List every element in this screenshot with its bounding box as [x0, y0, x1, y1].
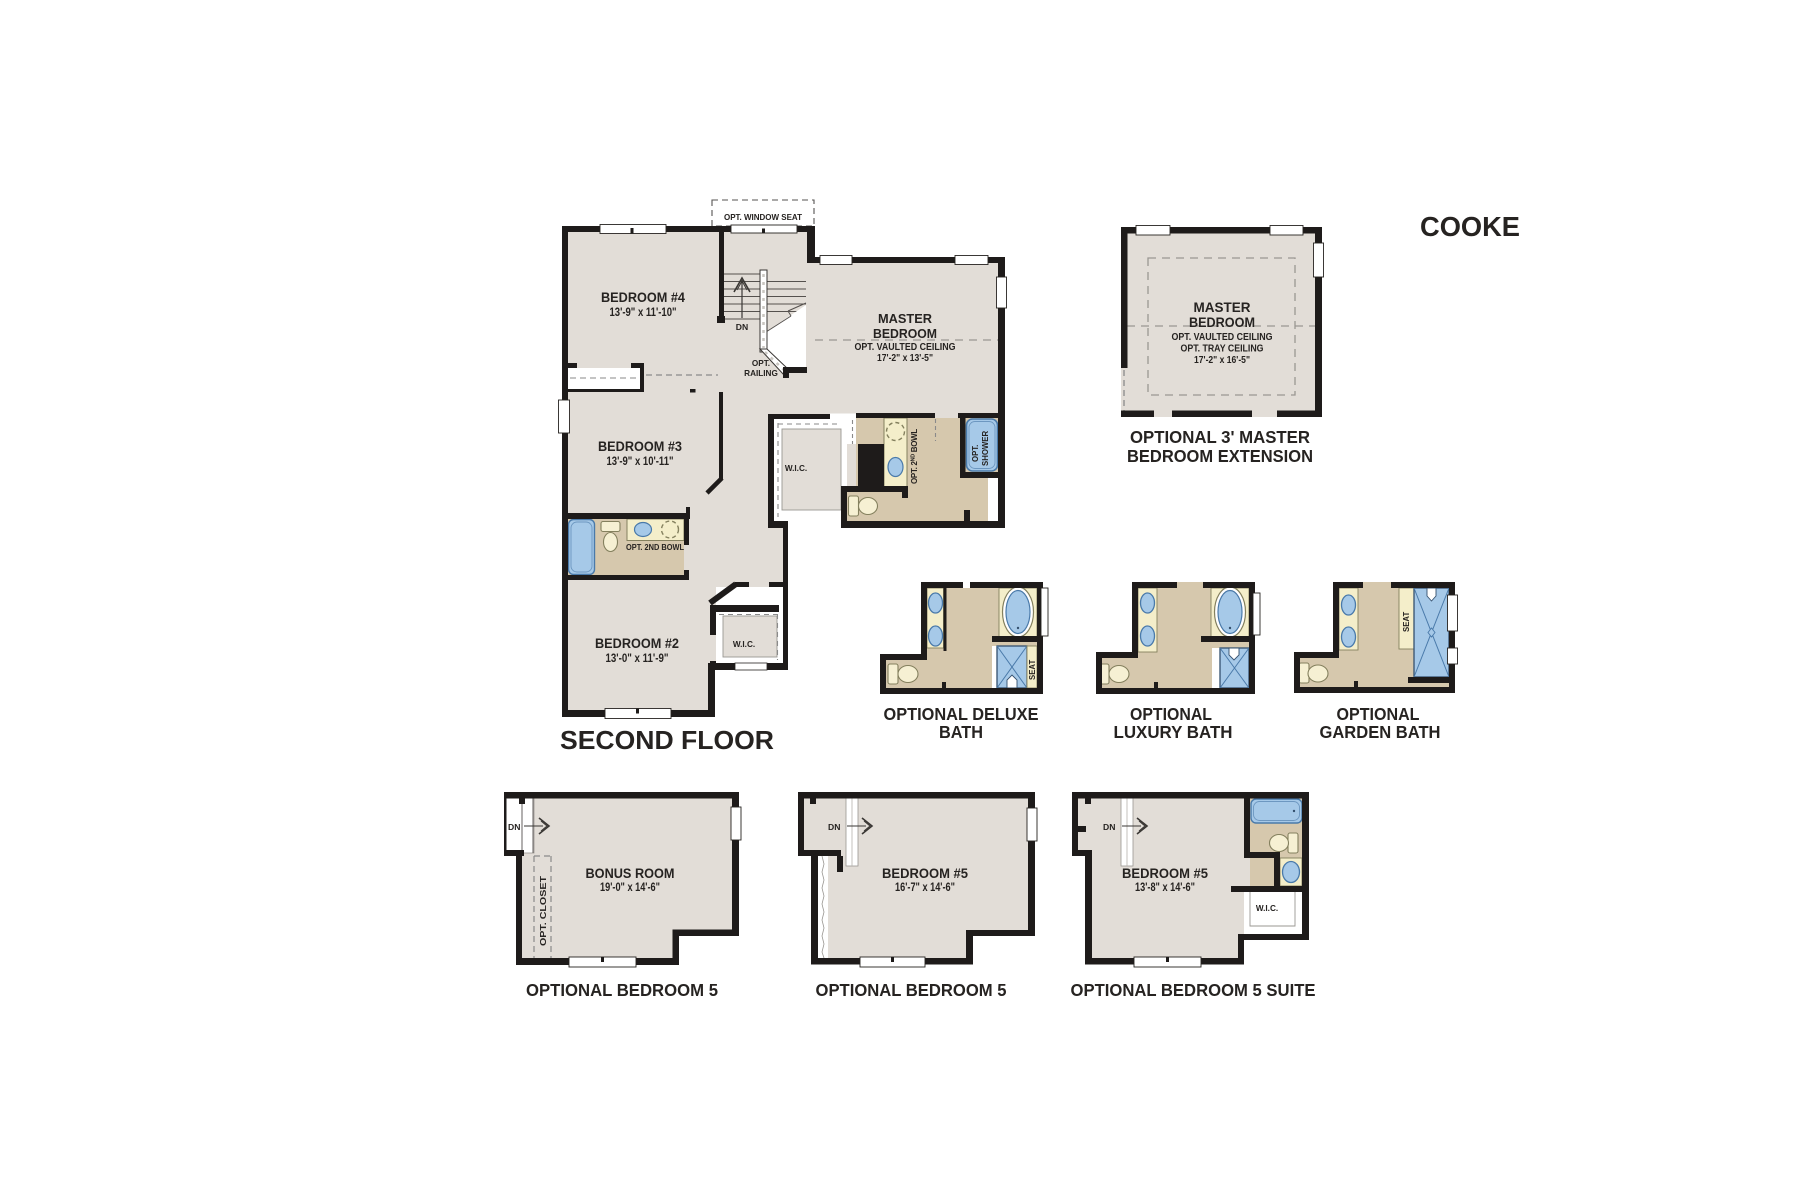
svg-text:OPT. TRAY CEILING: OPT. TRAY CEILING: [1181, 343, 1264, 355]
svg-text:SHOWER: SHOWER: [981, 431, 990, 466]
svg-text:W.I.C.: W.I.C.: [1256, 904, 1278, 913]
svg-text:MASTER: MASTER: [1194, 299, 1251, 315]
svg-text:COOKE: COOKE: [1420, 211, 1520, 242]
svg-text:BEDROOM EXTENSION: BEDROOM EXTENSION: [1127, 446, 1313, 466]
svg-text:DN: DN: [828, 822, 840, 832]
svg-text:BEDROOM #2: BEDROOM #2: [595, 636, 679, 651]
svg-text:OPTIONAL 3' MASTER: OPTIONAL 3' MASTER: [1130, 427, 1310, 447]
svg-text:OPT.: OPT.: [752, 359, 770, 368]
svg-text:13'-0" x 11'-9": 13'-0" x 11'-9": [606, 651, 669, 665]
svg-text:OPT. CLOSET: OPT. CLOSET: [539, 876, 548, 946]
svg-text:19'-0" x 14'-6": 19'-0" x 14'-6": [600, 880, 660, 894]
svg-text:BEDROOM: BEDROOM: [1189, 314, 1255, 330]
svg-text:LUXURY BATH: LUXURY BATH: [1114, 722, 1233, 742]
svg-text:W.I.C.: W.I.C.: [733, 640, 755, 649]
svg-text:13'-8" x 14'-6": 13'-8" x 14'-6": [1135, 880, 1195, 894]
svg-text:OPT.: OPT.: [971, 445, 980, 462]
svg-text:OPT. WINDOW SEAT: OPT. WINDOW SEAT: [724, 212, 803, 222]
svg-text:BEDROOM: BEDROOM: [873, 326, 937, 341]
svg-text:OPT. VAULTED CEILING: OPT. VAULTED CEILING: [1172, 331, 1273, 343]
svg-text:W.I.C.: W.I.C.: [785, 464, 807, 473]
svg-text:OPT. 2ND BOWL: OPT. 2ND BOWL: [626, 543, 684, 552]
svg-text:OPTIONAL: OPTIONAL: [1130, 704, 1212, 724]
svg-text:SECOND FLOOR: SECOND FLOOR: [560, 725, 774, 755]
svg-text:13'-9" x 11'-10": 13'-9" x 11'-10": [610, 305, 677, 319]
svg-text:OPTIONAL: OPTIONAL: [1337, 704, 1420, 724]
svg-text:BATH: BATH: [939, 722, 983, 742]
svg-text:OPTIONAL BEDROOM 5 SUITE: OPTIONAL BEDROOM 5 SUITE: [1071, 980, 1316, 1000]
svg-text:OPTIONAL BEDROOM 5: OPTIONAL BEDROOM 5: [526, 980, 718, 1000]
svg-text:DN: DN: [508, 822, 520, 832]
svg-text:OPTIONAL DELUXE: OPTIONAL DELUXE: [884, 704, 1039, 724]
svg-text:RAILING: RAILING: [744, 369, 778, 378]
svg-text:17'-2" x 16'-5": 17'-2" x 16'-5": [1194, 354, 1250, 366]
svg-text:SEAT: SEAT: [1028, 660, 1037, 680]
svg-text:OPTIONAL BEDROOM 5: OPTIONAL BEDROOM 5: [816, 980, 1007, 1000]
svg-text:BEDROOM #5: BEDROOM #5: [882, 866, 968, 881]
svg-text:BEDROOM #4: BEDROOM #4: [601, 290, 685, 305]
svg-text:GARDEN BATH: GARDEN BATH: [1320, 722, 1441, 742]
svg-text:BONUS ROOM: BONUS ROOM: [586, 866, 675, 881]
svg-text:16'-7" x 14'-6": 16'-7" x 14'-6": [895, 880, 955, 894]
svg-text:DN: DN: [736, 322, 748, 332]
svg-text:17'-2" x 13'-5": 17'-2" x 13'-5": [877, 352, 933, 364]
svg-text:BEDROOM #3: BEDROOM #3: [598, 439, 682, 454]
svg-text:13'-9" x 10'-11": 13'-9" x 10'-11": [607, 454, 674, 468]
svg-text:SEAT: SEAT: [1402, 612, 1411, 632]
svg-text:MASTER: MASTER: [878, 311, 933, 326]
svg-text:BEDROOM #5: BEDROOM #5: [1122, 866, 1208, 881]
svg-text:DN: DN: [1103, 822, 1115, 832]
